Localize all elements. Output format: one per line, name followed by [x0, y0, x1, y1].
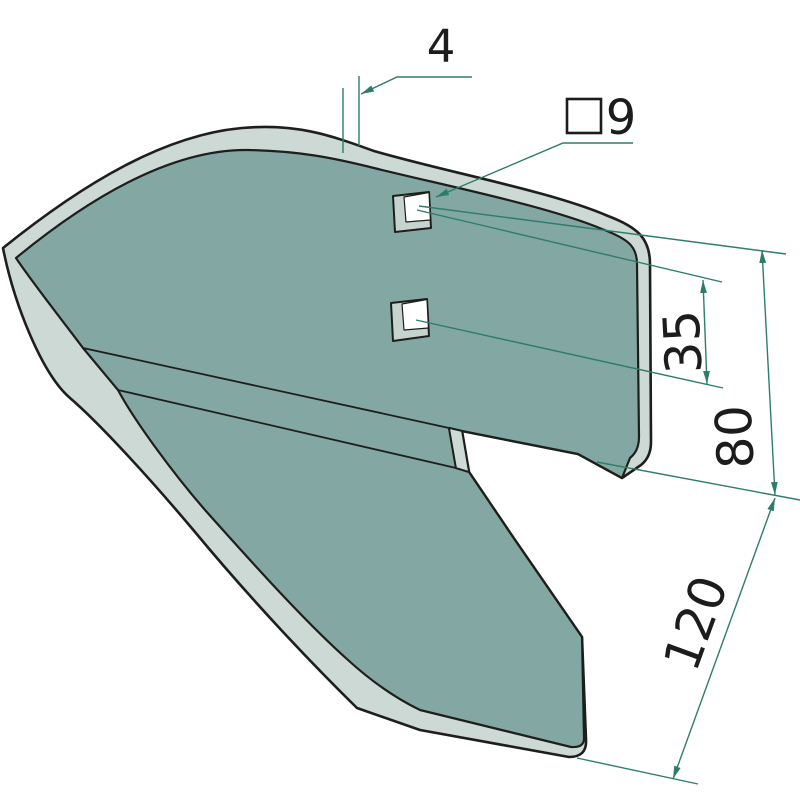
part-drawing-svg: 4 9 35 80 120 [0, 0, 800, 800]
hole-size-label: 9 [606, 90, 637, 146]
square-section-icon [567, 99, 601, 133]
lower-span-label: 120 [652, 568, 739, 678]
upper-span-extension-line-bottom [597, 462, 800, 500]
lower-hole-opening [402, 300, 428, 331]
hole-pitch-label: 35 [652, 309, 713, 376]
upper-span-label: 80 [704, 404, 765, 471]
thickness-leader-line [361, 77, 472, 94]
lower-square-hole [391, 299, 429, 341]
technical-drawing-canvas: 4 9 35 80 120 [0, 0, 800, 800]
thickness-label: 4 [427, 20, 456, 73]
part-group [3, 127, 651, 757]
